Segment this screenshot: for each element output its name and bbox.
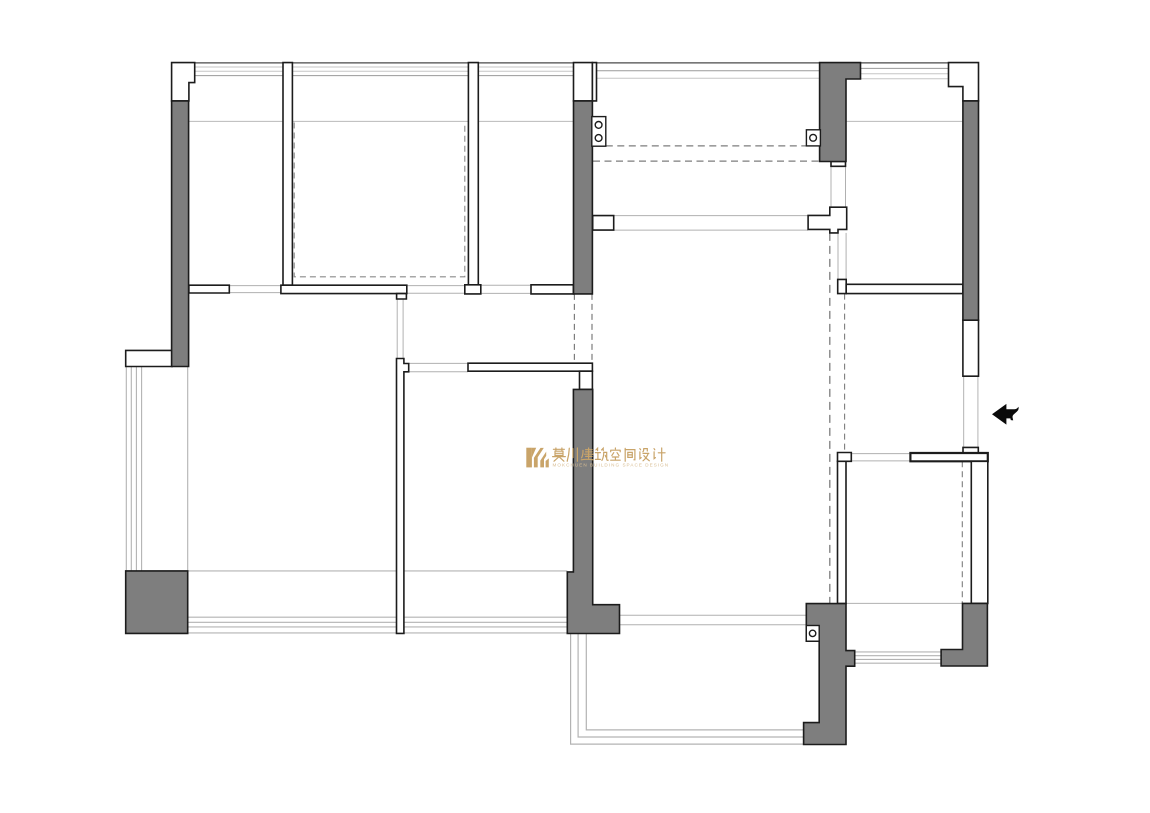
svg-text:MOKCHUEN BUILDING SPACE DESIGN: MOKCHUEN BUILDING SPACE DESIGN — [553, 463, 670, 468]
